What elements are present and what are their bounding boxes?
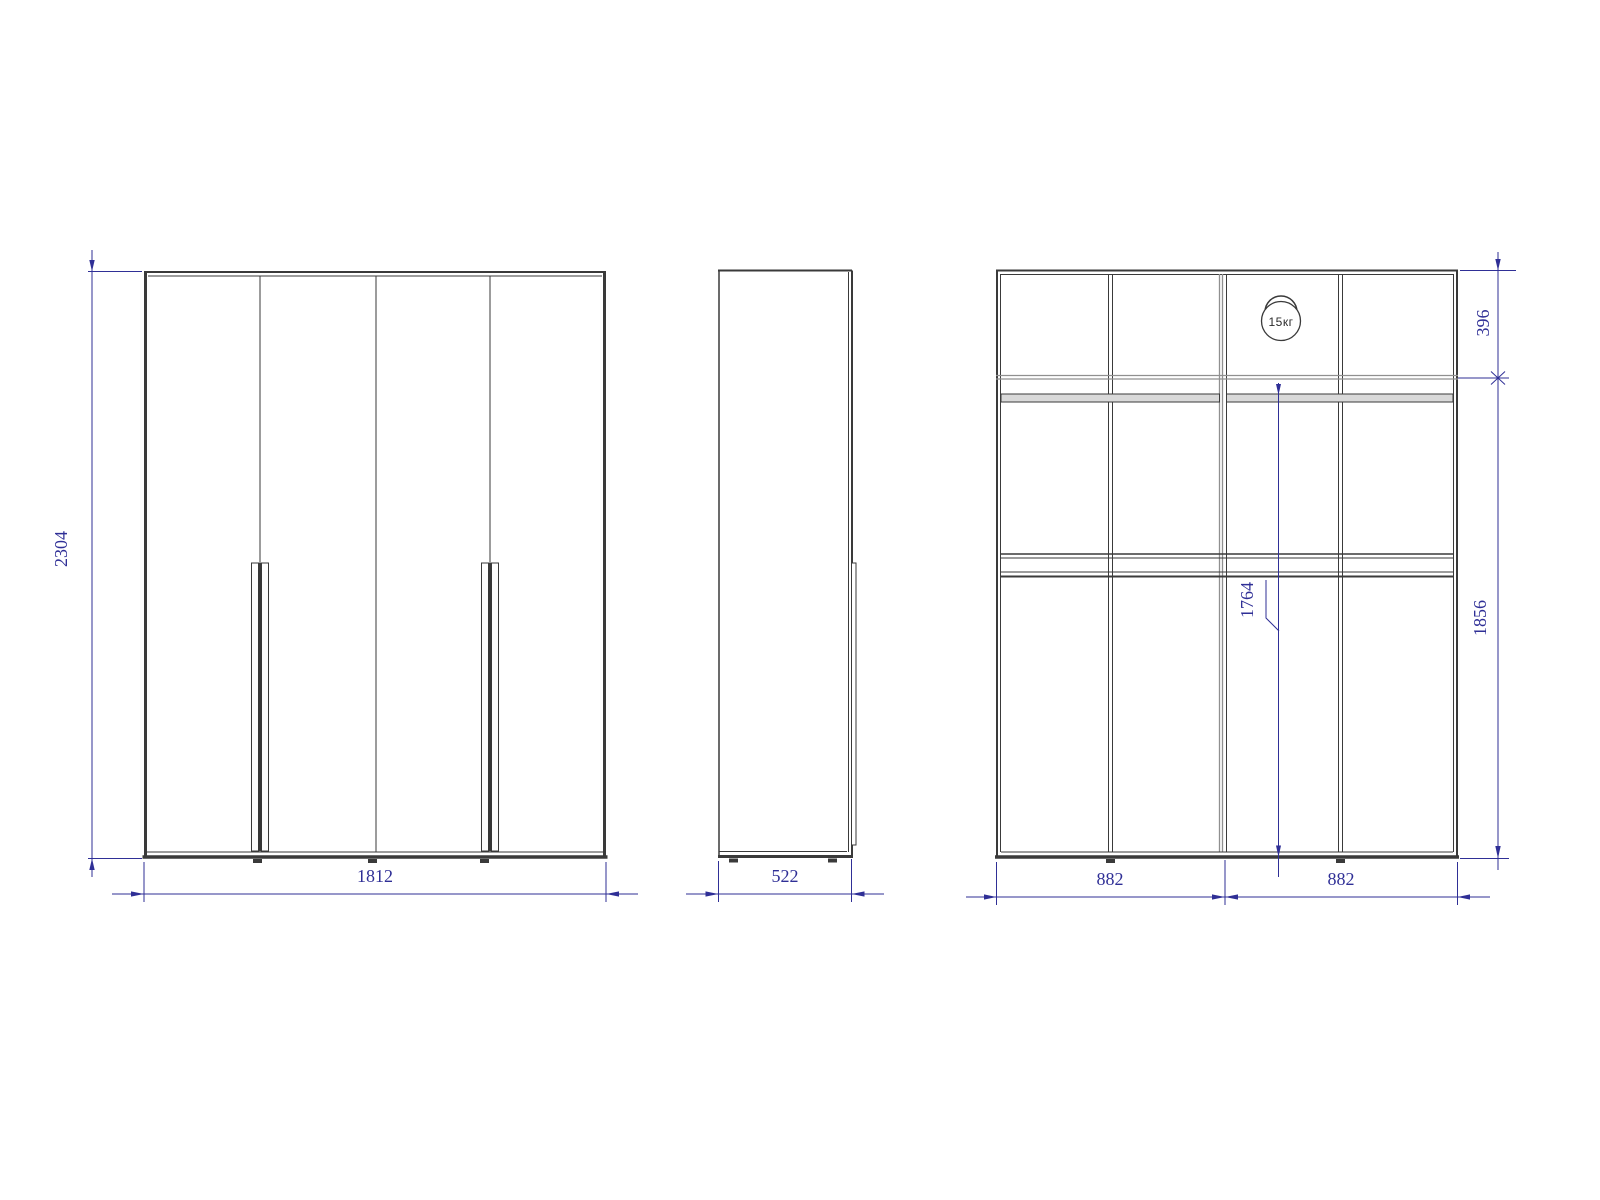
foot-glide [828, 859, 837, 863]
dim-chain-396-1856: 396 1856 [1458, 252, 1516, 870]
arrowhead-icon [1276, 384, 1281, 395]
handle-profile-icon [492, 563, 499, 851]
handle-profile-icon [262, 563, 269, 851]
arrowhead-icon [606, 891, 619, 896]
handle-profile-icon [482, 563, 489, 851]
dim-halves-882: 882 882 [966, 860, 1490, 905]
dim-text-rod-height: 1764 [1237, 582, 1257, 618]
dim-text-depth: 522 [772, 866, 799, 886]
dim-text-width: 1812 [357, 866, 393, 886]
dim-text-left-half: 882 [1097, 869, 1124, 889]
dim-text-right-half: 882 [1328, 869, 1355, 889]
leader-line [1266, 580, 1279, 631]
foot-glide [1106, 859, 1115, 863]
foot-glide [729, 859, 738, 863]
dim-height-2304: 2304 [51, 250, 142, 877]
arrowhead-icon [984, 894, 997, 899]
dim-rod-1764: 1764 [1237, 383, 1281, 877]
foot-glide [480, 859, 489, 863]
handle-profile-icon [852, 563, 857, 845]
handle-profile-icon [252, 563, 259, 851]
arrowhead-icon [131, 891, 144, 896]
dim-text-top-section: 396 [1473, 310, 1493, 337]
side-view [718, 270, 856, 863]
load-badge-text: 15кг [1269, 315, 1294, 329]
arrowhead-icon [1495, 259, 1500, 271]
arrowhead-icon [852, 891, 865, 896]
arrowhead-icon [89, 859, 94, 871]
hanging-rod [1001, 394, 1220, 402]
arrowhead-icon [1212, 894, 1225, 899]
dim-width-1812: 1812 [112, 862, 638, 902]
dim-text-height: 2304 [51, 531, 71, 567]
hanging-rod [1227, 394, 1454, 402]
arrowhead-icon [706, 891, 719, 896]
foot-glide [1336, 859, 1345, 863]
foot-glide [368, 859, 377, 863]
dim-depth-522: 522 [686, 859, 884, 902]
internal-view: 15кг [995, 270, 1459, 863]
arrowhead-icon [1458, 894, 1471, 899]
dim-text-lower-section: 1856 [1470, 600, 1490, 636]
wardrobe-drawing: 2304 1812 522 [0, 0, 1600, 1200]
arrowhead-icon [89, 260, 94, 272]
front-view [143, 271, 608, 863]
drawing-canvas: 2304 1812 522 [0, 0, 1600, 1200]
foot-glide [253, 859, 262, 863]
kettlebell-icon: 15кг [1262, 296, 1301, 341]
arrowhead-icon [1495, 846, 1500, 859]
arrowhead-icon [1225, 894, 1238, 899]
